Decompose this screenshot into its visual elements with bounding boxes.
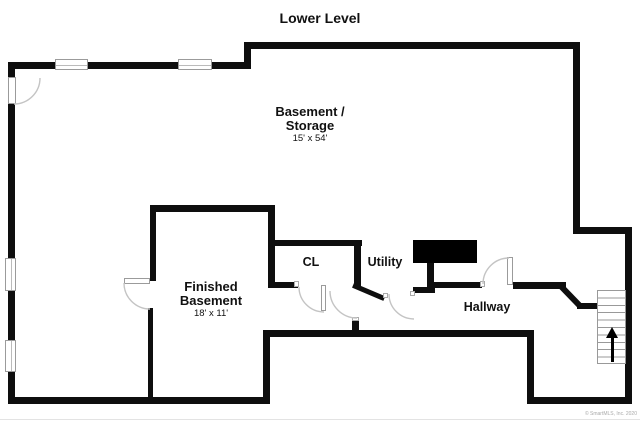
wall-bottom-right [527,397,632,404]
bottom-edge-line [0,419,640,420]
finished-basement-line2: Basement [141,294,281,308]
hallway-door-leaf [507,257,513,285]
wall-hallway-south [263,330,534,337]
basement-storage-line1: Basement / [230,105,390,119]
hall-right-door-arc [483,258,509,284]
door-jamb-3 [410,291,415,296]
hall-left-door-arc [389,294,414,319]
entry-door-leaf [8,77,16,104]
wall-hall-jog-v [427,263,434,293]
window-top-1 [55,59,88,70]
wall-left-seg4 [8,372,15,404]
door-jamb-4 [480,281,485,287]
wall-right-upper [573,42,580,234]
entry-door-arc [14,78,40,104]
wall-top-left [8,62,251,69]
basement-storage-line2: Storage [230,119,390,133]
closet-label: CL [296,255,326,269]
stairs-up-arrow-icon [611,336,614,362]
wall-stair-landing [577,303,598,309]
wall-left-seg2 [8,104,15,258]
door-jamb-1 [294,281,299,287]
window-left-2 [5,340,16,372]
wall-bottom-left [8,397,270,404]
wall-finished-basement-left-lower [148,308,153,398]
floor-plan: Lower Level [0,0,640,421]
wall-hall-step [527,330,534,404]
basement-storage-dims: 15' x 54' [230,133,390,144]
window-top-2 [178,59,212,70]
finished-basement-dims: 18' x 11' [141,308,281,319]
wall-left-seg1 [8,62,15,77]
hallway-label: Hallway [450,300,524,314]
utility-door-leaf [352,283,385,301]
wall-finished-basement-right [268,205,275,288]
wall-right-step [573,227,632,234]
watermark-text: © SmartMLS, Inc. 2020 [585,411,637,417]
utility-label: Utility [355,255,415,269]
furnace-unit [413,240,477,263]
finished-basement-line1: Finished [141,280,281,294]
stairs-up-arrowhead-icon [606,327,618,338]
wall-finished-basement-left-upper [150,205,156,281]
finished-basement-label: Finished Basement 18' x 11' [141,280,281,319]
wall-right-lower [625,227,632,404]
wall-left-seg3 [8,291,15,340]
wall-finished-basement-top [150,205,274,212]
closet-door-leaf [321,285,326,311]
door-jamb-5 [352,317,359,321]
wall-door-stub [352,320,359,330]
wall-hallway-north-1 [433,282,482,288]
page-title: Lower Level [220,10,420,26]
wall-top-right [244,42,580,49]
utility-door-arc [330,291,357,318]
window-left-1 [5,258,16,291]
basement-storage-label: Basement / Storage 15' x 54' [230,105,390,144]
wall-basement-step [263,330,270,404]
wall-closet-top [268,240,362,246]
door-jamb-2 [383,293,388,298]
